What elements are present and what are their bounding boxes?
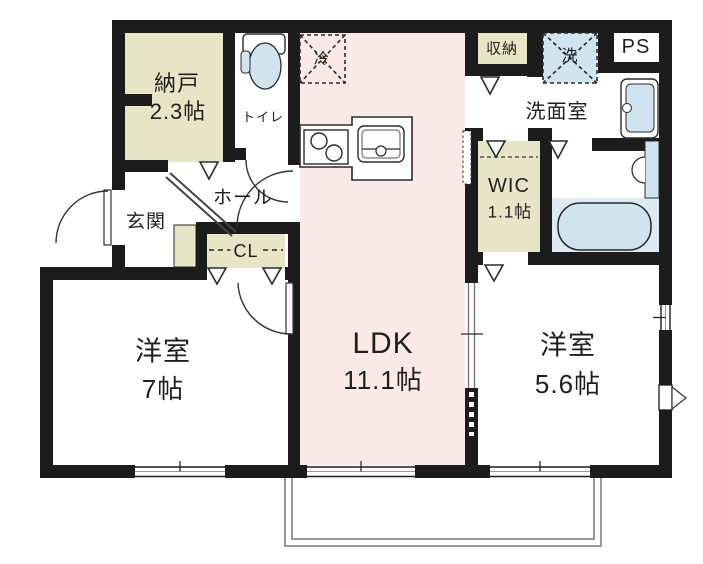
wall-hall-south-1 bbox=[40, 267, 207, 280]
wall-nando-toilet bbox=[223, 20, 235, 162]
stove bbox=[304, 130, 348, 164]
window-room56 bbox=[490, 461, 590, 478]
toilet-fixture bbox=[241, 34, 285, 89]
floor-plan-drawing bbox=[0, 0, 703, 564]
room-label-ldk: LDK bbox=[352, 329, 413, 359]
wall-ldk-west-upper bbox=[288, 20, 300, 165]
floor-plan: 納戸 2.3帖 トイレ 冷 玄関 ホール CL 収納 洗 PS 洗面室 WIC … bbox=[0, 0, 703, 564]
wall-cl-top bbox=[196, 222, 300, 234]
wall-left-lower bbox=[40, 267, 53, 478]
arrow-nando-door bbox=[200, 162, 218, 179]
balcony-outline bbox=[285, 478, 601, 546]
room-label-nando: 納戸 bbox=[154, 73, 200, 95]
wall-toilet-bottom bbox=[223, 148, 246, 160]
wall-ldk-east-4 bbox=[465, 440, 478, 478]
wall-right-1 bbox=[659, 20, 672, 305]
western-room7-door bbox=[238, 283, 293, 334]
wall-left-upper-2 bbox=[112, 245, 125, 267]
wall-bottom-4 bbox=[590, 465, 672, 478]
room-label-western-56: 洋室 bbox=[540, 333, 596, 360]
room-size-western-56: 5.6帖 bbox=[535, 371, 601, 397]
bathtub bbox=[558, 203, 651, 250]
room-label-genkan: 玄関 bbox=[126, 213, 166, 232]
wall-bottom-3 bbox=[415, 465, 490, 478]
wall-storage-washer bbox=[527, 20, 543, 77]
wall-ldk-west-lower bbox=[288, 228, 300, 465]
room-label-pipe-space: PS bbox=[622, 37, 651, 57]
wall-storage-front bbox=[470, 64, 527, 76]
room-label-washroom: 洗面室 bbox=[526, 102, 589, 122]
window-right-wall bbox=[653, 305, 672, 330]
wall-nando-stub bbox=[112, 94, 152, 106]
entrance-door bbox=[56, 190, 111, 245]
room-size-western-7: 7帖 bbox=[142, 376, 184, 402]
arrow-closet-door-left bbox=[208, 268, 226, 284]
wall-bottom-1 bbox=[40, 465, 135, 478]
arrow-storage-door bbox=[481, 77, 499, 94]
vent-window bbox=[659, 385, 686, 410]
wall-nando-bottom bbox=[112, 160, 168, 172]
wall-south-block-1 bbox=[465, 252, 483, 265]
shoe-cabinet bbox=[174, 225, 196, 267]
wall-south-block-2 bbox=[528, 252, 659, 265]
stove-burner bbox=[326, 145, 342, 161]
room-label-storage: 収納 bbox=[486, 42, 518, 57]
wall-top bbox=[112, 20, 672, 33]
room-size-nando: 2.3帖 bbox=[150, 101, 207, 123]
hatched-strip bbox=[463, 131, 471, 184]
room-label-hall: ホール bbox=[213, 189, 273, 208]
arrow-wic-south-door bbox=[485, 265, 503, 281]
ldk-floor bbox=[300, 33, 465, 465]
room-size-wic: 1.1帖 bbox=[488, 204, 533, 221]
stove-burner bbox=[311, 133, 327, 149]
vanity-sink bbox=[621, 79, 658, 138]
wall-right-2 bbox=[659, 330, 672, 385]
fixture-label-washer: 洗 bbox=[561, 49, 578, 65]
room-label-closet: CL bbox=[230, 242, 261, 260]
room-label-wic: WIC bbox=[488, 176, 530, 196]
window-room7 bbox=[135, 461, 225, 478]
room-label-toilet: トイレ bbox=[242, 111, 284, 124]
fixture-label-refrigerator: 冷 bbox=[314, 52, 330, 67]
wall-bottom-2 bbox=[225, 465, 307, 478]
room-label-western-7: 洋室 bbox=[135, 339, 191, 366]
room-size-ldk: 11.1帖 bbox=[343, 367, 423, 393]
wall-wic-bath bbox=[540, 128, 552, 265]
wall-hall-south-2 bbox=[285, 267, 300, 280]
arrow-closet-door-right bbox=[263, 268, 281, 284]
